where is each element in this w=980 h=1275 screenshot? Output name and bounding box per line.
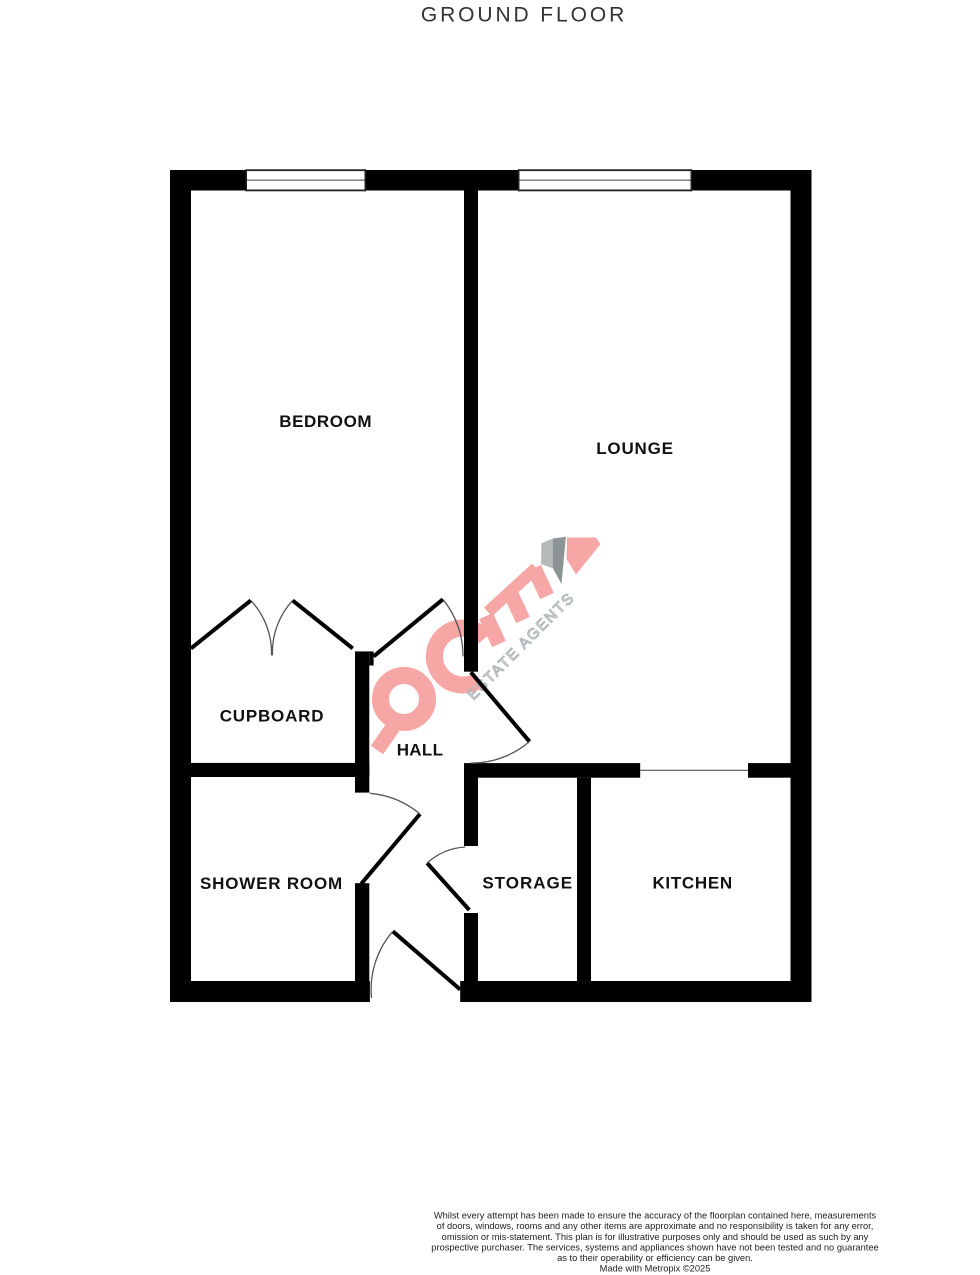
svg-text:as to their operability or eff: as to their operability or efficiency ca… — [557, 1253, 753, 1263]
svg-text:omission or mis-statement. Thi: omission or mis-statement. This plan is … — [442, 1232, 869, 1242]
svg-text:prospective purchaser. The ser: prospective purchaser. The services, sys… — [431, 1242, 878, 1252]
svg-text:of doors, windows, rooms and a: of doors, windows, rooms and any other i… — [437, 1221, 874, 1231]
svg-text:SHOWER ROOM: SHOWER ROOM — [200, 874, 343, 893]
svg-text:STORAGE: STORAGE — [482, 874, 573, 893]
svg-text:CUPBOARD: CUPBOARD — [220, 706, 325, 725]
svg-text:HALL: HALL — [397, 741, 444, 760]
svg-text:KITCHEN: KITCHEN — [652, 874, 732, 893]
svg-text:GROUND FLOOR: GROUND FLOOR — [421, 4, 627, 27]
svg-text:Made with Metropix ©2025: Made with Metropix ©2025 — [600, 1264, 711, 1274]
svg-text:Whilst every attempt has been: Whilst every attempt has been made to en… — [434, 1211, 877, 1221]
svg-text:LOUNGE: LOUNGE — [596, 439, 674, 458]
svg-text:BEDROOM: BEDROOM — [279, 412, 372, 431]
